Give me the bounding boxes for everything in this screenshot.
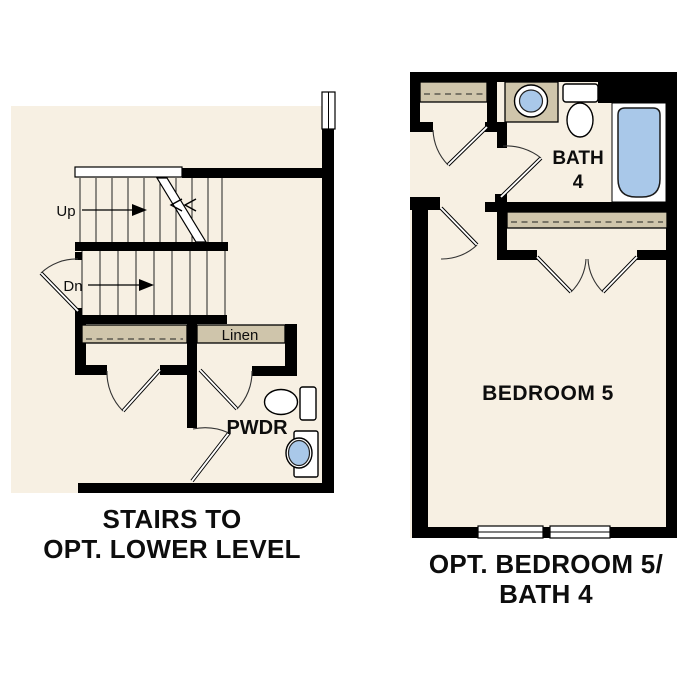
left-caption-line2: OPT. LOWER LEVEL bbox=[43, 534, 301, 564]
wall-window-symbol bbox=[322, 92, 335, 129]
bedroom-window-icon bbox=[550, 526, 610, 538]
stair-down-label: Dn bbox=[63, 278, 82, 295]
stair-up-label: Up bbox=[56, 203, 75, 220]
bathtub-icon bbox=[612, 103, 666, 202]
under-stair-closet-shelf bbox=[82, 325, 187, 343]
floor-plan-drawing: Up Dn bbox=[0, 0, 687, 687]
powder-room-label: PWDR bbox=[226, 417, 288, 439]
bedroom-label: BEDROOM 5 bbox=[482, 382, 614, 405]
stair-landing-edge bbox=[75, 167, 182, 177]
left-floor-plan: Up Dn bbox=[11, 92, 335, 493]
right-caption-line2: BATH 4 bbox=[499, 579, 593, 609]
bath-label-line2: 4 bbox=[573, 172, 584, 193]
left-caption-line1: STAIRS TO bbox=[103, 504, 242, 534]
right-caption-line1: OPT. BEDROOM 5/ bbox=[429, 549, 663, 579]
bedroom-closet-shelf bbox=[507, 212, 667, 228]
vanity-sink-icon bbox=[505, 82, 558, 122]
linen-closet-shelf: Linen bbox=[197, 325, 285, 344]
floor-plan-page: Up Dn bbox=[0, 0, 687, 687]
right-floor-plan: BATH 4 bbox=[410, 72, 677, 538]
bath-label-line1: BATH bbox=[552, 148, 603, 169]
bedroom-window-icon bbox=[478, 526, 543, 538]
hall-closet-shelf bbox=[420, 82, 487, 102]
linen-label: Linen bbox=[222, 327, 259, 344]
